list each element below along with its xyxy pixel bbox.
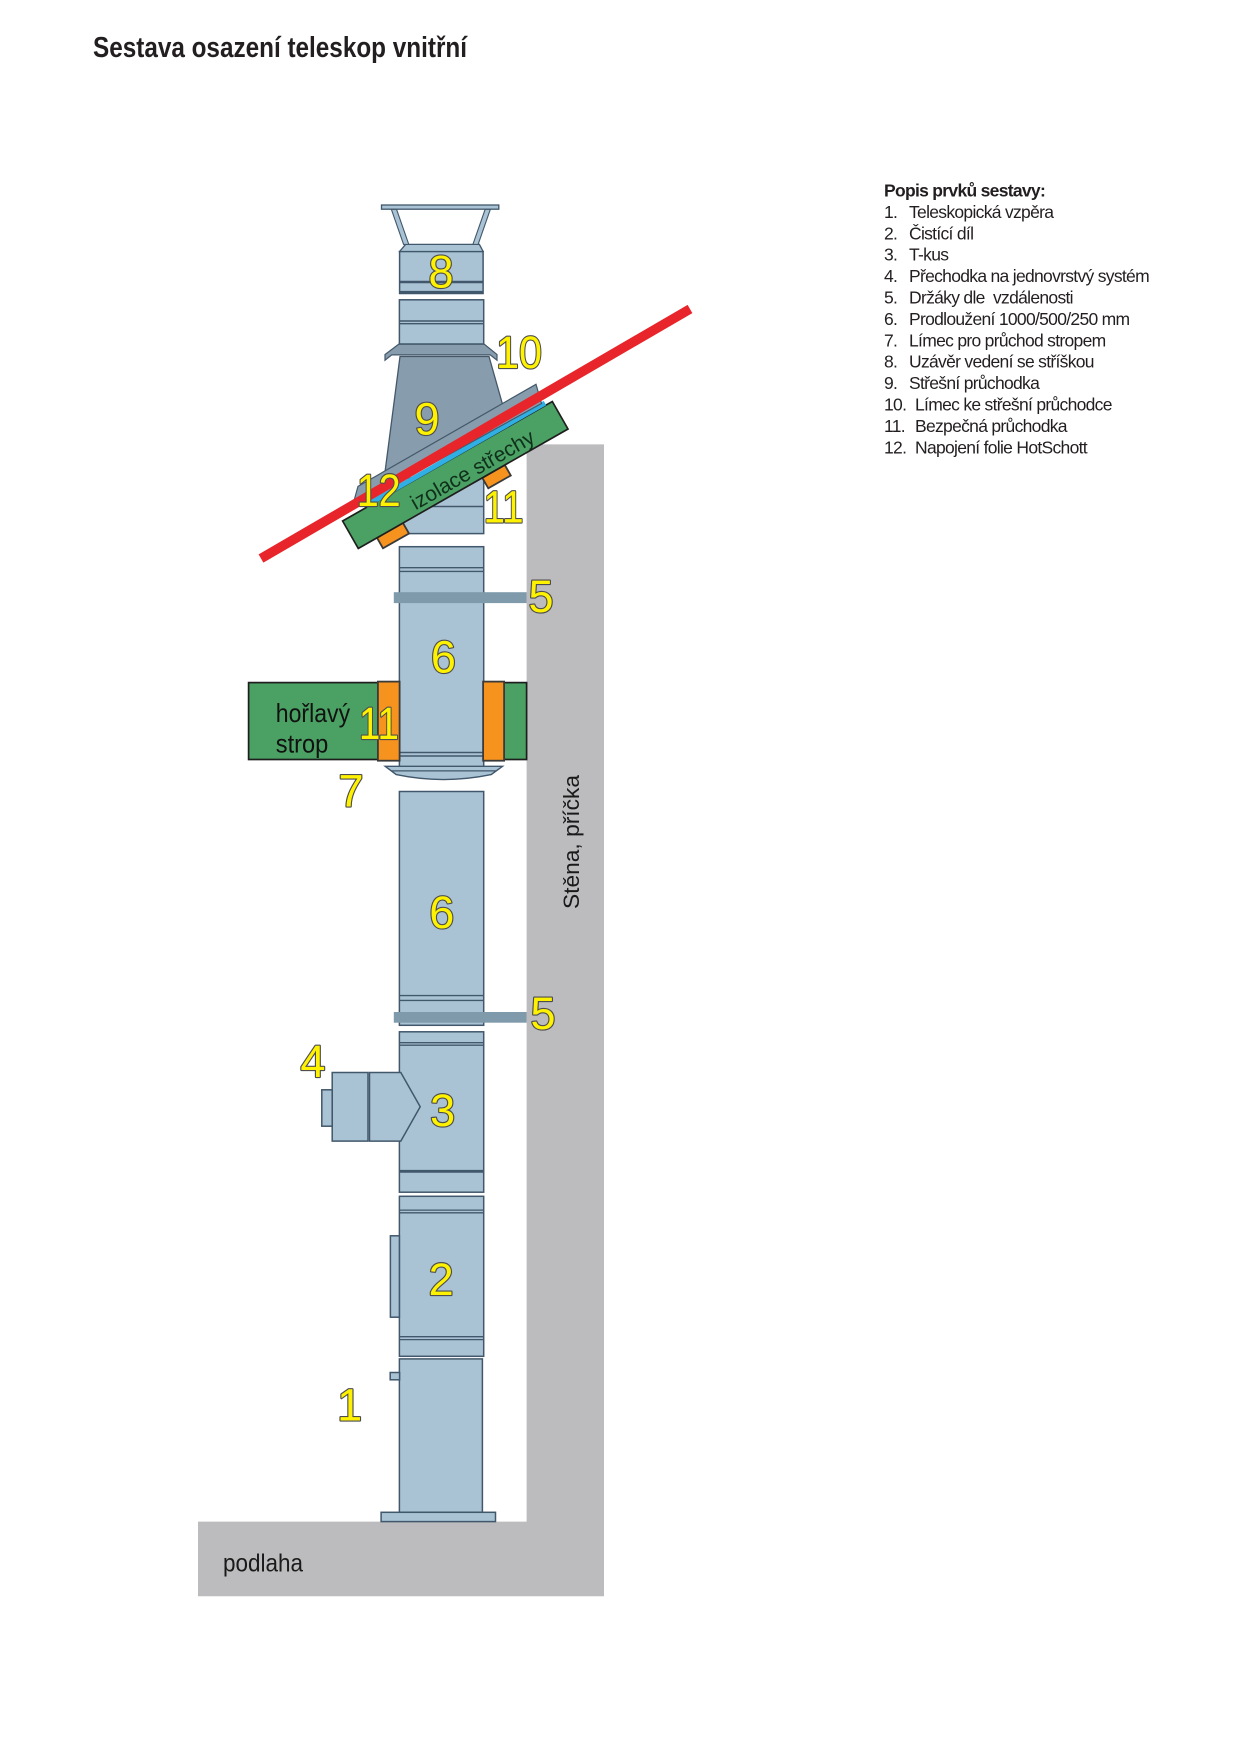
svg-text:10.Límec ke střešní průchodce: 10.Límec ke střešní průchodce (884, 395, 1112, 415)
svg-text:4.Přechodka na jednovrstvý sys: 4.Přechodka na jednovrstvý systém (884, 266, 1149, 286)
svg-text:3.T-kus: 3.T-kus (884, 245, 949, 265)
svg-text:12.Napojení folie HotSchott: 12.Napojení folie HotSchott (884, 437, 1088, 457)
svg-text:10: 10 (496, 327, 542, 378)
svg-text:podlaha: podlaha (223, 1550, 303, 1578)
svg-text:8: 8 (428, 247, 453, 298)
svg-text:Popis prvků sestavy:: Popis prvků sestavy: (884, 181, 1045, 201)
svg-text:2: 2 (429, 1254, 454, 1305)
svg-text:hořlavý: hořlavý (276, 698, 350, 728)
svg-text:2.Čistící díl: 2.Čistící díl (884, 222, 973, 243)
svg-text:12: 12 (357, 465, 401, 516)
svg-text:Stěna, příčka: Stěna, příčka (559, 775, 584, 909)
svg-text:5: 5 (530, 988, 555, 1039)
svg-text:8.Uzávěr vedení se stříškou: 8.Uzávěr vedení se stříškou (884, 352, 1094, 372)
svg-text:9.Střešní průchodka: 9.Střešní průchodka (884, 373, 1040, 393)
svg-text:5.Držáky dle vzdálenosti: 5.Držáky dle vzdálenosti (884, 288, 1073, 308)
svg-text:7.Límec pro průchod stropem: 7.Límec pro průchod stropem (884, 330, 1106, 350)
svg-text:strop: strop (276, 728, 329, 758)
svg-text:6: 6 (431, 632, 456, 683)
svg-text:11: 11 (359, 698, 399, 749)
svg-text:11: 11 (484, 482, 524, 533)
svg-text:1: 1 (337, 1380, 362, 1431)
svg-text:11.Bezpečná průchodka: 11.Bezpečná průchodka (884, 416, 1068, 436)
svg-text:1.Teleskopická vzpěra: 1.Teleskopická vzpěra (884, 202, 1054, 222)
svg-text:7: 7 (338, 766, 363, 817)
svg-text:6.Prodloužení 1000/500/250 mm: 6.Prodloužení 1000/500/250 mm (884, 309, 1130, 329)
svg-text:9: 9 (414, 394, 439, 445)
svg-text:6: 6 (429, 887, 454, 938)
svg-text:5: 5 (528, 571, 553, 622)
svg-text:Sestava osazení teleskop vnitř: Sestava osazení teleskop vnitřní (93, 32, 468, 64)
svg-text:4: 4 (300, 1036, 325, 1087)
svg-text:3: 3 (430, 1085, 455, 1136)
